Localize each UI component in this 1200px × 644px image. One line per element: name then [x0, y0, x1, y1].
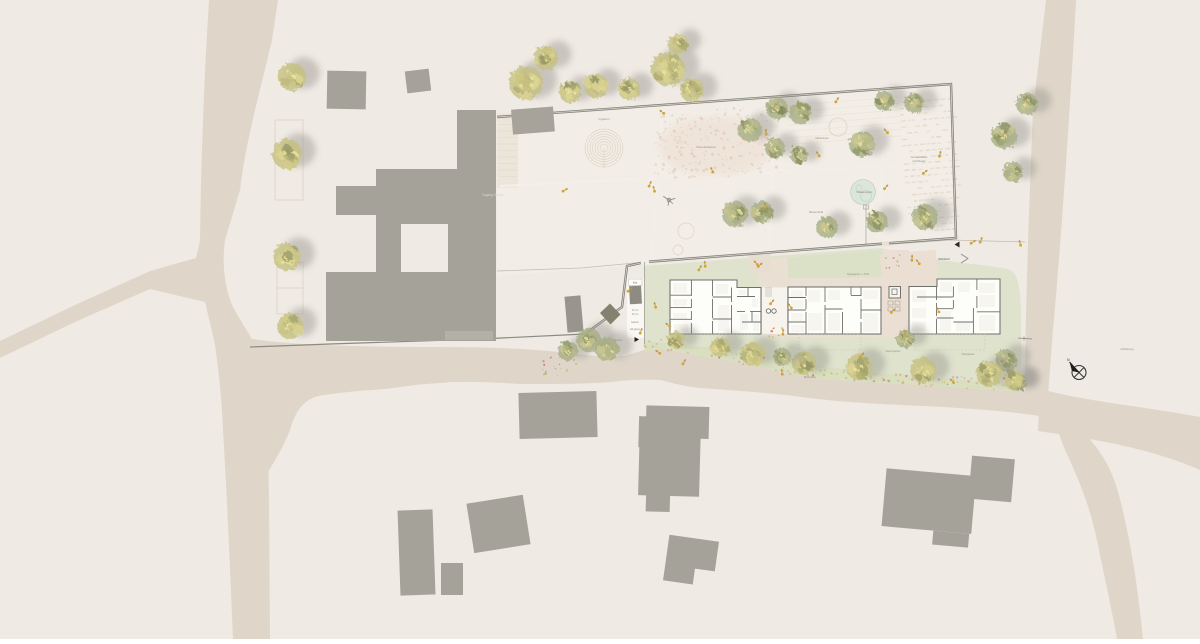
svg-text:Anlieferung: Anlieferung [1120, 347, 1134, 351]
svg-text:Irrgarten: Irrgarten [599, 117, 610, 121]
svg-text:Parken: Parken [939, 257, 949, 261]
svg-text:Obstwiese: Obstwiese [815, 136, 829, 140]
svg-text:Streuobstwiese: Streuobstwiese [696, 145, 716, 149]
svg-text:10 m²: 10 m² [632, 312, 639, 316]
svg-text:Obstgarten: Obstgarten [961, 352, 975, 356]
svg-text:Zugang Garten: Zugang Garten [482, 193, 504, 197]
svg-text:10 m²: 10 m² [632, 308, 639, 312]
svg-text:Gemüsebeete: Gemüsebeete [911, 155, 928, 159]
svg-text:Kita: Kita [633, 282, 638, 285]
svg-text:Garten: Garten [631, 320, 639, 324]
svg-text:Wiesenfeld: Wiesenfeld [809, 210, 824, 214]
svg-text:Blühwiese: Blühwiese [804, 375, 817, 379]
svg-text:Zufahrt: Zufahrt [614, 338, 623, 342]
svg-text:Spielgarten + Treff: Spielgarten + Treff [847, 272, 869, 276]
svg-text:Naschgarten: Naschgarten [886, 349, 901, 353]
svg-text:Eingang: Eingang [630, 327, 640, 331]
svg-text:Hochbeete: Hochbeete [913, 159, 927, 163]
svg-text:Wasserspiel: Wasserspiel [856, 190, 872, 194]
